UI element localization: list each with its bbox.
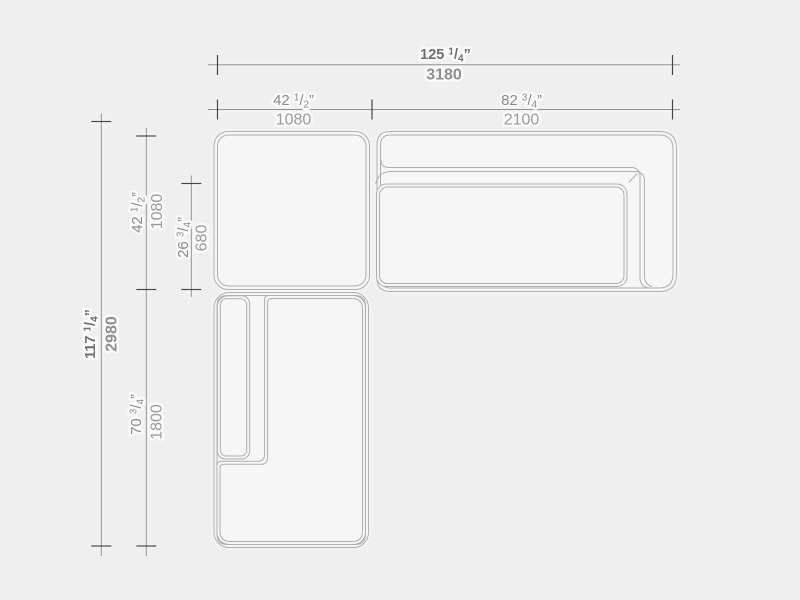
svg-text:2980: 2980 xyxy=(104,316,121,352)
svg-text:1080: 1080 xyxy=(149,194,166,230)
svg-text:680: 680 xyxy=(194,225,211,252)
svg-text:117 1/4”: 117 1/4” xyxy=(83,309,101,359)
svg-text:2100: 2100 xyxy=(504,112,540,129)
svg-text:1080: 1080 xyxy=(276,112,312,129)
svg-text:125 1/4”: 125 1/4” xyxy=(420,47,471,65)
svg-text:1800: 1800 xyxy=(149,404,166,440)
svg-text:3180: 3180 xyxy=(426,67,462,84)
